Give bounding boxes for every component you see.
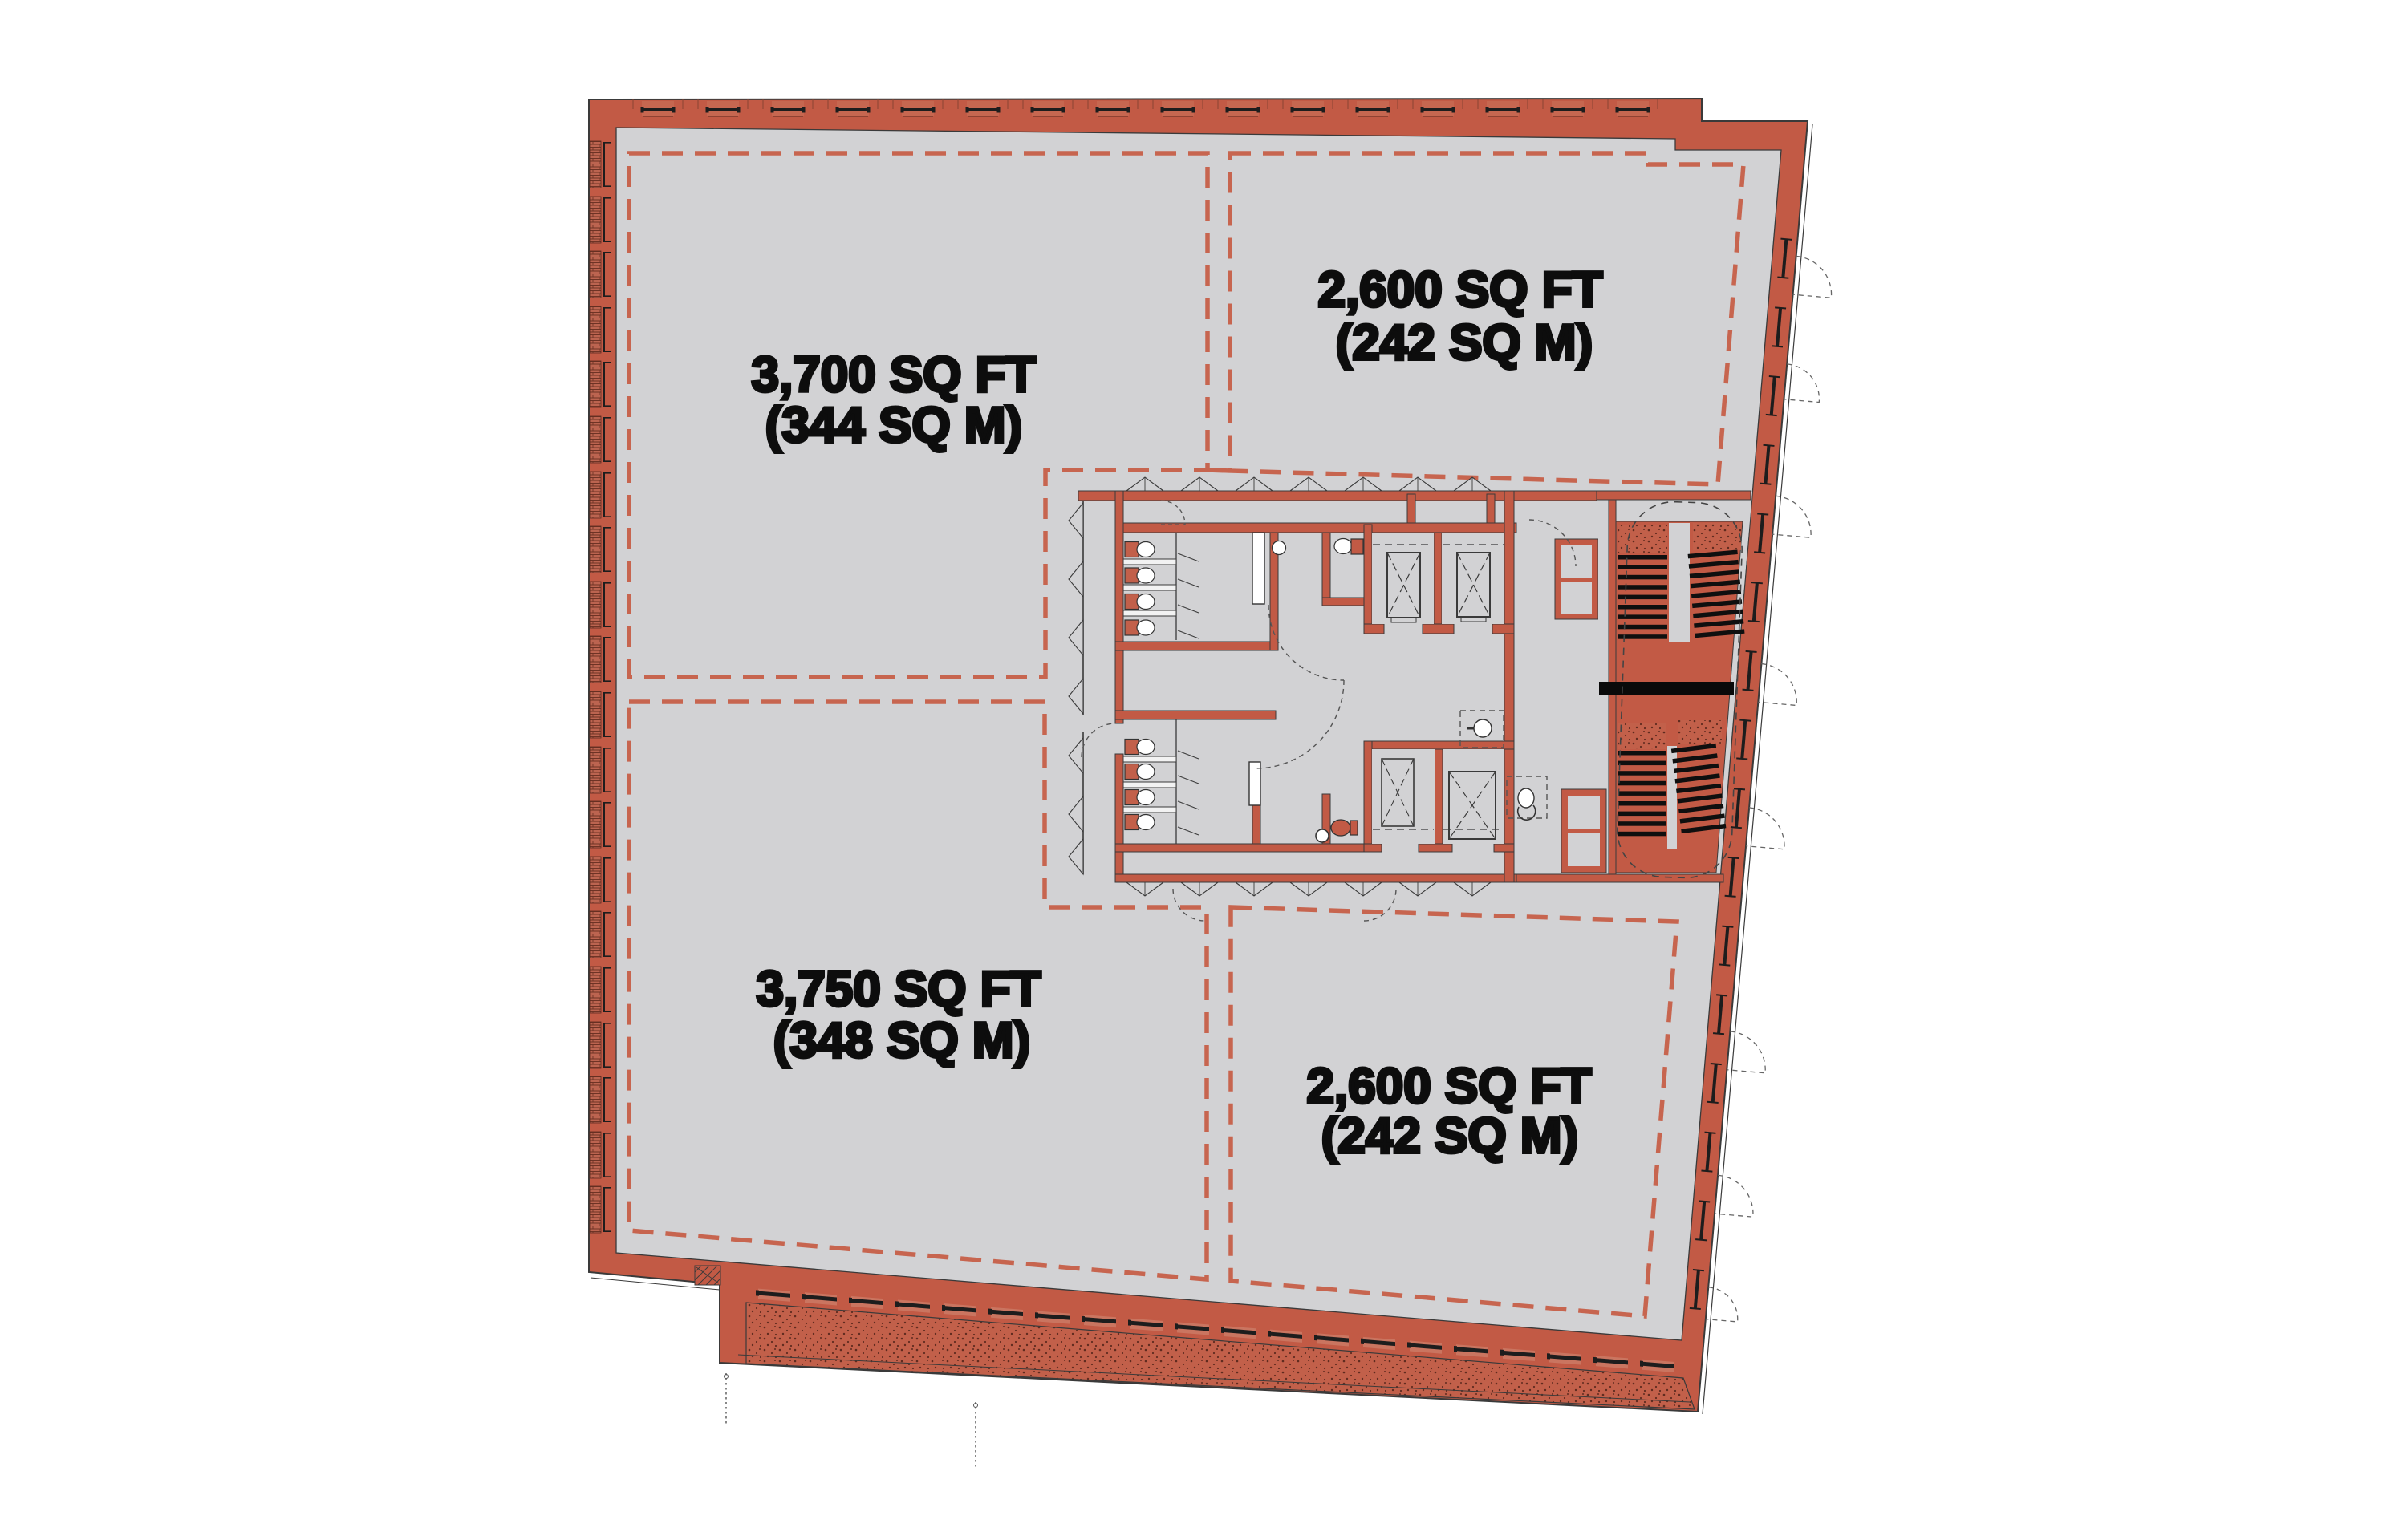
svg-text:3,750 SQ FT: 3,750 SQ FT bbox=[757, 962, 1041, 1017]
svg-text:2,600 SQ FT: 2,600 SQ FT bbox=[1318, 262, 1603, 318]
svg-text:(344 SQ M): (344 SQ M) bbox=[765, 398, 1022, 453]
svg-text:3,700 SQ FT: 3,700 SQ FT bbox=[752, 347, 1037, 403]
svg-text:(348 SQ M): (348 SQ M) bbox=[773, 1013, 1030, 1068]
svg-text:(242 SQ M): (242 SQ M) bbox=[1321, 1108, 1578, 1164]
svg-text:(242 SQ M): (242 SQ M) bbox=[1336, 315, 1593, 371]
svg-text:2,600 SQ FT: 2,600 SQ FT bbox=[1307, 1059, 1592, 1114]
